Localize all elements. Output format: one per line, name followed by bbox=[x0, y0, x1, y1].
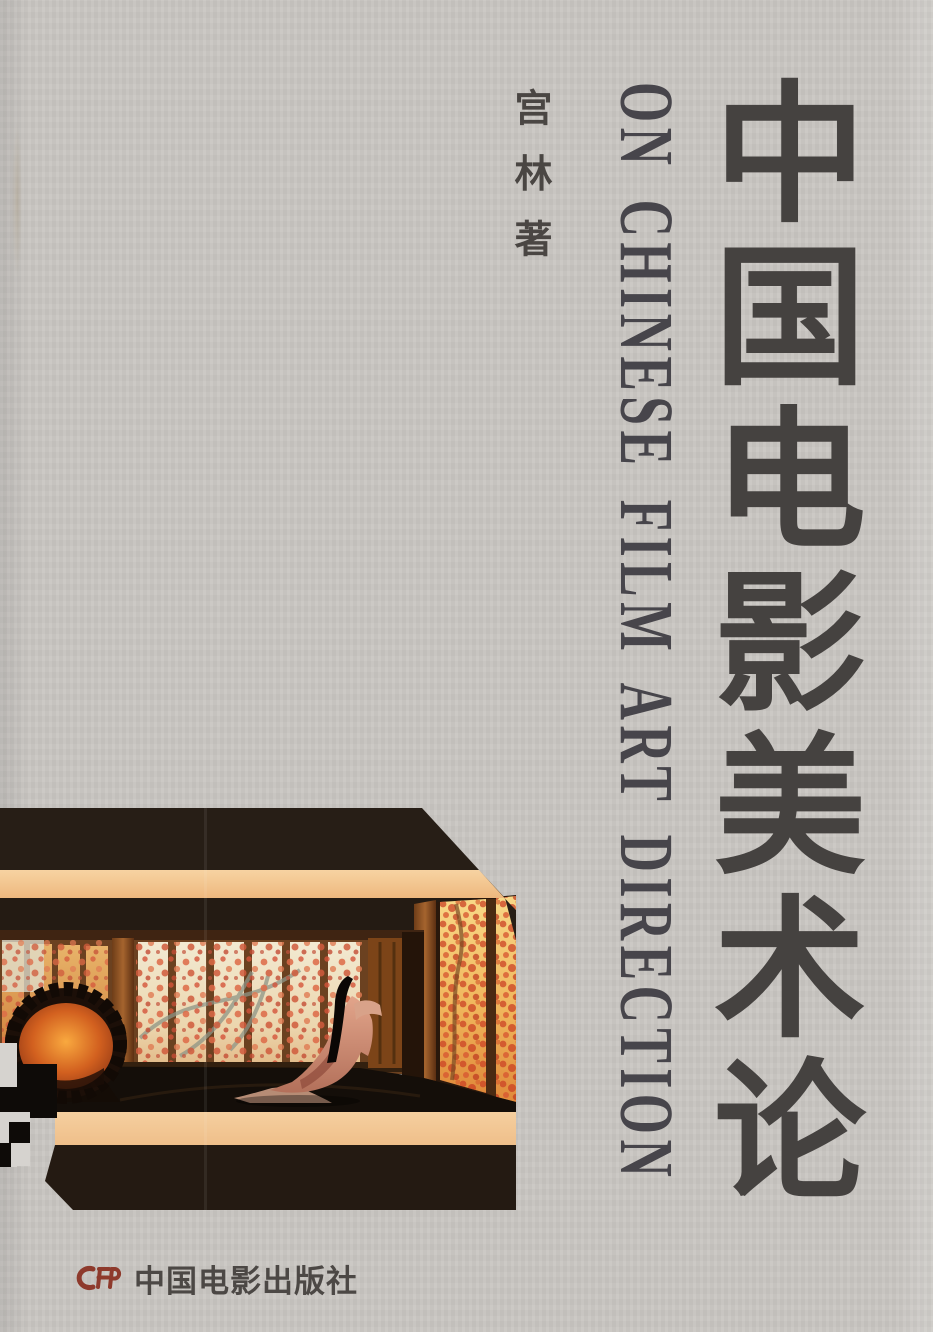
author-name: 宫 林 著 bbox=[506, 88, 552, 266]
publisher-logo-cfp-icon bbox=[76, 1262, 122, 1294]
still-bottom-bands bbox=[45, 1112, 516, 1210]
still-right-panels bbox=[414, 895, 516, 1108]
english-title-vertical: ON CHINESE FILM ART DIRECTION bbox=[606, 82, 686, 1182]
film-still-image bbox=[0, 800, 516, 1212]
still-crease bbox=[204, 808, 207, 1210]
publisher-name: 中国电影出版社 bbox=[134, 1256, 358, 1301]
main-title-chinese: 中国电影美术论 bbox=[696, 74, 854, 1215]
scan-stain bbox=[12, 120, 22, 280]
publisher-block: 中国电影出版社 bbox=[76, 1256, 358, 1300]
